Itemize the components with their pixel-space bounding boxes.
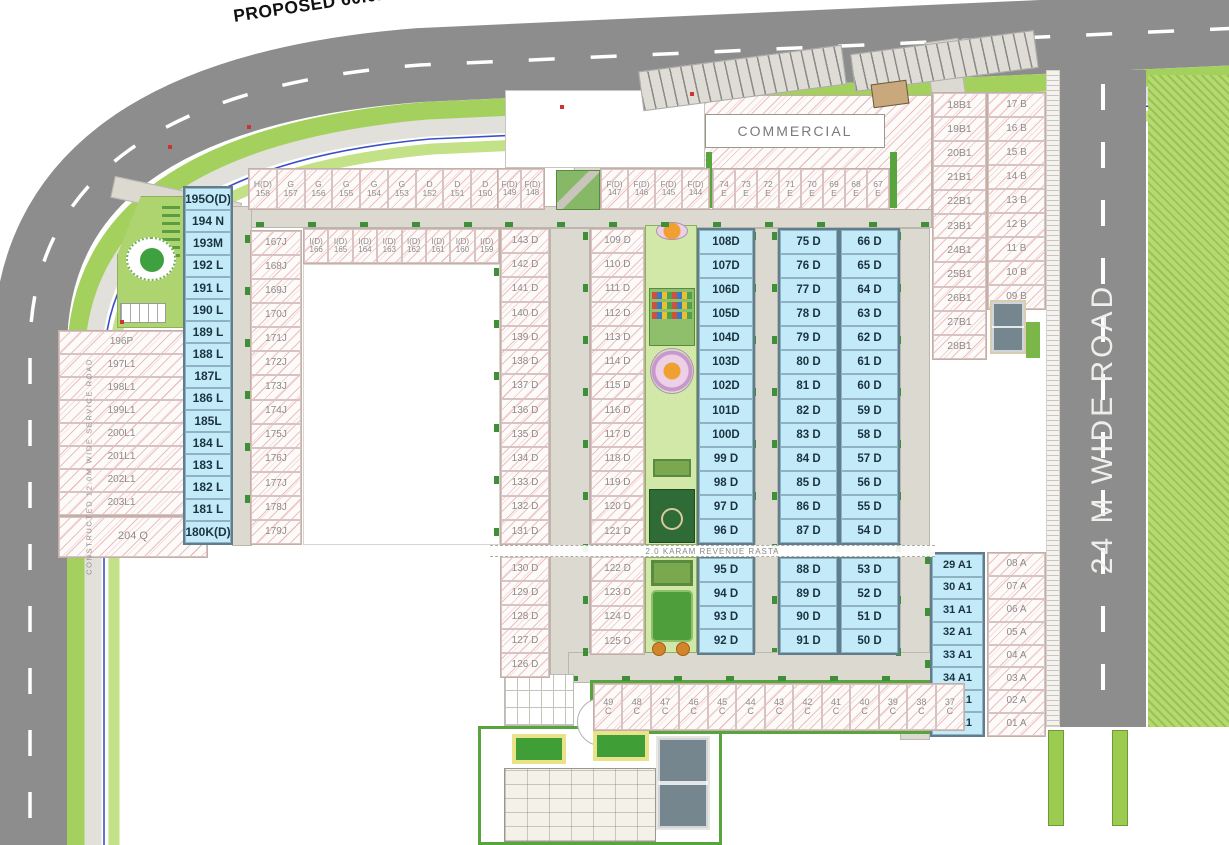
plot: 136 D [501,399,549,423]
plots-layer: 196P197L1198L1199L1200L1201L1202L1203L12… [0,0,1229,845]
plot: 16 B [988,117,1045,141]
plot: 18B1 [933,93,986,117]
plot: 01 A [988,713,1045,736]
plot: 70 E [801,169,823,209]
plot: 180K(D) [185,521,231,543]
plot: F(D) 149 [498,169,521,209]
plot: 169J [251,279,301,303]
plot: 172J [251,351,301,375]
plot: 142 D [501,253,549,277]
plot: 23B1 [933,214,986,238]
plot: 72 E [757,169,779,209]
plot: 62 D [841,326,898,350]
plot: 189 L [185,321,231,343]
plot-group-ID-row: I(D) 166I(D) 165I(D) 164I(D) 163I(D) 162… [303,228,500,264]
plot: 44 C [736,684,764,730]
plot-group-A-col: 08 A07 A06 A05 A04 A03 A02 A01 A [987,552,1046,737]
plot: G 153 [388,169,416,209]
plot: 108D [699,230,753,254]
plot: 40 C [850,684,878,730]
plot: 75 D [780,230,837,254]
plot: 14 B [988,165,1045,189]
plot: 122 D [591,557,644,581]
plot: 113 D [591,326,644,350]
plot: 183 L [185,454,231,476]
plot: 190 L [185,299,231,321]
plot: I(D) 163 [377,229,401,263]
plot: 84 D [780,447,837,471]
plot: 63 D [841,302,898,326]
plot: 126 D [501,653,549,677]
plot: 125 D [591,630,644,654]
plot: 97 D [699,495,753,519]
plot: I(D) 164 [353,229,377,263]
plot: 07 A [988,576,1045,599]
plot: F(D) 144 [682,169,709,209]
plot: H(D) 158 [249,169,277,209]
plot: 19B1 [933,117,986,141]
plot: 114 D [591,350,644,374]
plot: 50 D [841,629,898,653]
plot: 103D [699,350,753,374]
plot: 92 D [699,629,753,653]
plot: 173J [251,375,301,399]
revenue-rasta-label: 2.0 KARAM REVENUE RASTA [646,547,780,556]
plot: 116 D [591,399,644,423]
plot: 56 D [841,471,898,495]
plot: 133 D [501,471,549,495]
plot: 193M [185,232,231,254]
plot: 118 D [591,447,644,471]
plot: 83 D [780,423,837,447]
plot: 197L1 [59,354,184,377]
plot: 59 D [841,399,898,423]
plot: 51 D [841,606,898,630]
plot: D 151 [443,169,471,209]
plot: 91 D [780,629,837,653]
plot: 120 D [591,496,644,520]
plot: D 150 [471,169,499,209]
plot: 66 D [841,230,898,254]
plot: 170J [251,303,301,327]
revenue-rasta-band: 2.0 KARAM REVENUE RASTA [490,545,935,557]
commercial-label: COMMERCIAL [738,123,853,139]
plot: 60 D [841,374,898,398]
plot: G 157 [277,169,305,209]
plot: 195O(D) [185,188,231,210]
plot: 30 A1 [932,577,983,600]
plot: 128 D [501,605,549,629]
plot: 45 C [708,684,736,730]
plot: 39 C [879,684,907,730]
plot: 22B1 [933,190,986,214]
plot: F(D) 147 [601,169,628,209]
plot-group-196-204: 196P197L1198L1199L1200L1201L1202L1203L1 [58,330,185,516]
plot: 187L [185,366,231,388]
plot: 21B1 [933,166,986,190]
plot: 80 D [780,350,837,374]
service-road-label: CONSTRUCTED 12.0M WIDE SERVICE ROAD [85,302,94,632]
plot: 77 D [780,278,837,302]
site-plan: 196P197L1198L1199L1200L1201L1202L1203L12… [0,0,1229,845]
plot: 131 D [501,520,549,544]
plot: 73 E [735,169,757,209]
plot-group-D-122: 122 D123 D124 D125 D [590,556,645,655]
plot: 138 D [501,350,549,374]
plot: 81 D [780,374,837,398]
plot: 123 D [591,581,644,605]
plot: 27B1 [933,311,986,335]
plot-group-D-109: 109 D110 D111 D112 D113 D114 D115 D116 D… [590,228,645,545]
plot: 82 D [780,399,837,423]
plot-group-D-95: 95 D94 D93 D92 D [697,556,755,655]
plot: I(D) 165 [328,229,352,263]
plot-group-FD-row-1: F(D) 149F(D) 148 [497,168,545,210]
plot-group-C-row: 49 C48 C47 C46 C45 C44 C43 C42 C41 C40 C… [593,683,965,731]
plot: 64 D [841,278,898,302]
plot: 52 D [841,582,898,606]
plot: I(D) 161 [426,229,450,263]
plot: 198L1 [59,377,184,400]
plot: 68 E [845,169,867,209]
plot: 58 D [841,423,898,447]
plot: 89 D [780,582,837,606]
plot: 69 E [823,169,845,209]
plot: 167J [251,231,301,255]
plot: 107D [699,254,753,278]
plot: 86 D [780,495,837,519]
plot: 02 A [988,690,1045,713]
plot: G 155 [332,169,360,209]
plot: I(D) 166 [304,229,328,263]
plot: 202L1 [59,469,184,492]
swimming-pool [512,734,566,764]
plot: 117 D [591,423,644,447]
plot: 104D [699,326,753,350]
plot: 124 D [591,606,644,630]
plot: 182 L [185,476,231,498]
24m-road-label: 24 M WIDE ROAD [1086,279,1120,579]
plot: 13 B [988,189,1045,213]
plot: 49 C [594,684,622,730]
plot: 87 D [780,519,837,543]
plot: 132 D [501,496,549,520]
plot: 06 A [988,599,1045,622]
plot: 71 E [779,169,801,209]
plot: 41 C [822,684,850,730]
plot-group-D-143: 143 D142 D141 D140 D139 D138 D137 D136 D… [500,228,550,545]
swimming-pool [593,731,649,761]
plot: 47 C [651,684,679,730]
plot-group-E-row: 74 E73 E72 E71 E70 E69 E68 E67 E [712,168,890,210]
survey-marker [690,92,694,96]
plot: 177J [251,472,301,496]
plot: 141 D [501,277,549,301]
plot: 137 D [501,374,549,398]
plot: 28B1 [933,335,986,359]
plot: 99 D [699,447,753,471]
commercial-parcel: COMMERCIAL [705,114,885,148]
plot: 90 D [780,606,837,630]
plot: 186 L [185,388,231,410]
tennis-court [656,736,710,830]
plot: 08 A [988,553,1045,576]
plot: 96 D [699,519,753,543]
plot: F(D) 145 [655,169,682,209]
plot: 105D [699,302,753,326]
plot-group-D-108: 108D107D106D105D104D103D102D101D100D99 D… [697,228,755,545]
plot: 176J [251,448,301,472]
plot-group-B1-col: 18B119B120B121B122B123B124B125B126B127B1… [932,92,987,360]
plot: 76 D [780,254,837,278]
plot: 04 A [988,645,1045,668]
plot: 10 B [988,261,1045,285]
plot: 203L1 [59,492,184,515]
plot: 135 D [501,423,549,447]
sports-court-b1 [990,300,1026,354]
plot: 55 D [841,495,898,519]
plot: 139 D [501,326,549,350]
plot: 130 D [501,557,549,581]
plot-group-D-130: 130 D129 D128 D127 D126 D [500,556,550,678]
plot: 119 D [591,471,644,495]
plot: 26B1 [933,287,986,311]
survey-marker [247,125,251,129]
plot: 37 C [936,684,964,730]
plot: 171J [251,327,301,351]
plot: 134 D [501,447,549,471]
plot: 185L [185,410,231,432]
plot-group-J-col: 167J168J169J170J171J172J173J174J175J176J… [250,230,302,545]
plot: 94 D [699,582,753,606]
plot: I(D) 159 [475,229,499,263]
plot: 181 L [185,499,231,521]
plot: 54 D [841,519,898,543]
survey-marker [560,105,564,109]
plot: 179J [251,520,301,544]
plot: 65 D [841,254,898,278]
plot: 191 L [185,277,231,299]
plot: 95 D [699,558,753,582]
plot: 15 B [988,141,1045,165]
plot: 31 A1 [932,599,983,622]
plot: 194 N [185,210,231,232]
plot: 201L1 [59,446,184,469]
plot: 188 L [185,343,231,365]
plot: F(D) 146 [628,169,655,209]
plot-group-D-75: 75 D76 D77 D78 D79 D80 D81 D82 D83 D84 D… [778,228,839,545]
plot: 143 D [501,229,549,253]
plot: 79 D [780,326,837,350]
plot: 199L1 [59,400,184,423]
plot-group-D-66: 66 D65 D64 D63 D62 D61 D60 D59 D58 D57 D… [839,228,900,545]
plot-group-D-88: 88 D89 D90 D91 D [778,556,839,655]
plot: 196P [59,331,184,354]
plot: 192 L [185,255,231,277]
plot: 174J [251,400,301,424]
plot: 78 D [780,302,837,326]
plot: 46 C [679,684,707,730]
plot-group-L-col: 195O(D)194 N193M192 L191 L190 L189 L188 … [183,186,233,545]
plot: 168J [251,255,301,279]
plot: 17 B [988,93,1045,117]
plot: 67 E [867,169,889,209]
plot: D 152 [416,169,444,209]
plot: 05 A [988,622,1045,645]
plot: 85 D [780,471,837,495]
plot: 12 B [988,213,1045,237]
plot: 111 D [591,277,644,301]
plot: 48 C [622,684,650,730]
survey-marker [168,145,172,149]
plot: 03 A [988,667,1045,690]
plot: 25B1 [933,262,986,286]
plot: 140 D [501,302,549,326]
plot: 102D [699,374,753,398]
plot: G 154 [360,169,388,209]
plot: 11 B [988,237,1045,261]
plot: 106D [699,278,753,302]
plot: 178J [251,496,301,520]
plot: 127 D [501,629,549,653]
plot-group-HD-row: H(D) 158G 157G 156G 155G 154G 153D 152D … [248,168,500,210]
plot: 33 A1 [932,645,983,668]
plot: I(D) 162 [402,229,426,263]
plot-group-B-col: 17 B16 B15 B14 B13 B12 B11 B10 B09 B [987,92,1046,310]
plot: G 156 [305,169,333,209]
plot: 184 L [185,432,231,454]
plot: 74 E [713,169,735,209]
plot: 109 D [591,229,644,253]
plot-group-FD-row-2: F(D) 147F(D) 146F(D) 145F(D) 144 [600,168,710,210]
plot: 93 D [699,606,753,630]
plot: 112 D [591,302,644,326]
plot: 24B1 [933,238,986,262]
plot: 20B1 [933,141,986,165]
plot: 110 D [591,253,644,277]
plot: 129 D [501,581,549,605]
plot: 43 C [765,684,793,730]
plot: 98 D [699,471,753,495]
plot: 101D [699,399,753,423]
plot: 121 D [591,520,644,544]
plot: 29 A1 [932,554,983,577]
plot: 53 D [841,558,898,582]
plot: F(D) 148 [521,169,544,209]
plot: 115 D [591,374,644,398]
survey-marker [120,320,124,324]
plot: 42 C [793,684,821,730]
plot-group-D-53: 53 D52 D51 D50 D [839,556,900,655]
plot: 61 D [841,350,898,374]
plot: 38 C [907,684,935,730]
plot: 57 D [841,447,898,471]
plot: 88 D [780,558,837,582]
plot: 32 A1 [932,622,983,645]
plot: 100D [699,423,753,447]
plot: 175J [251,424,301,448]
plot: 200L1 [59,423,184,446]
plot: I(D) 160 [450,229,474,263]
